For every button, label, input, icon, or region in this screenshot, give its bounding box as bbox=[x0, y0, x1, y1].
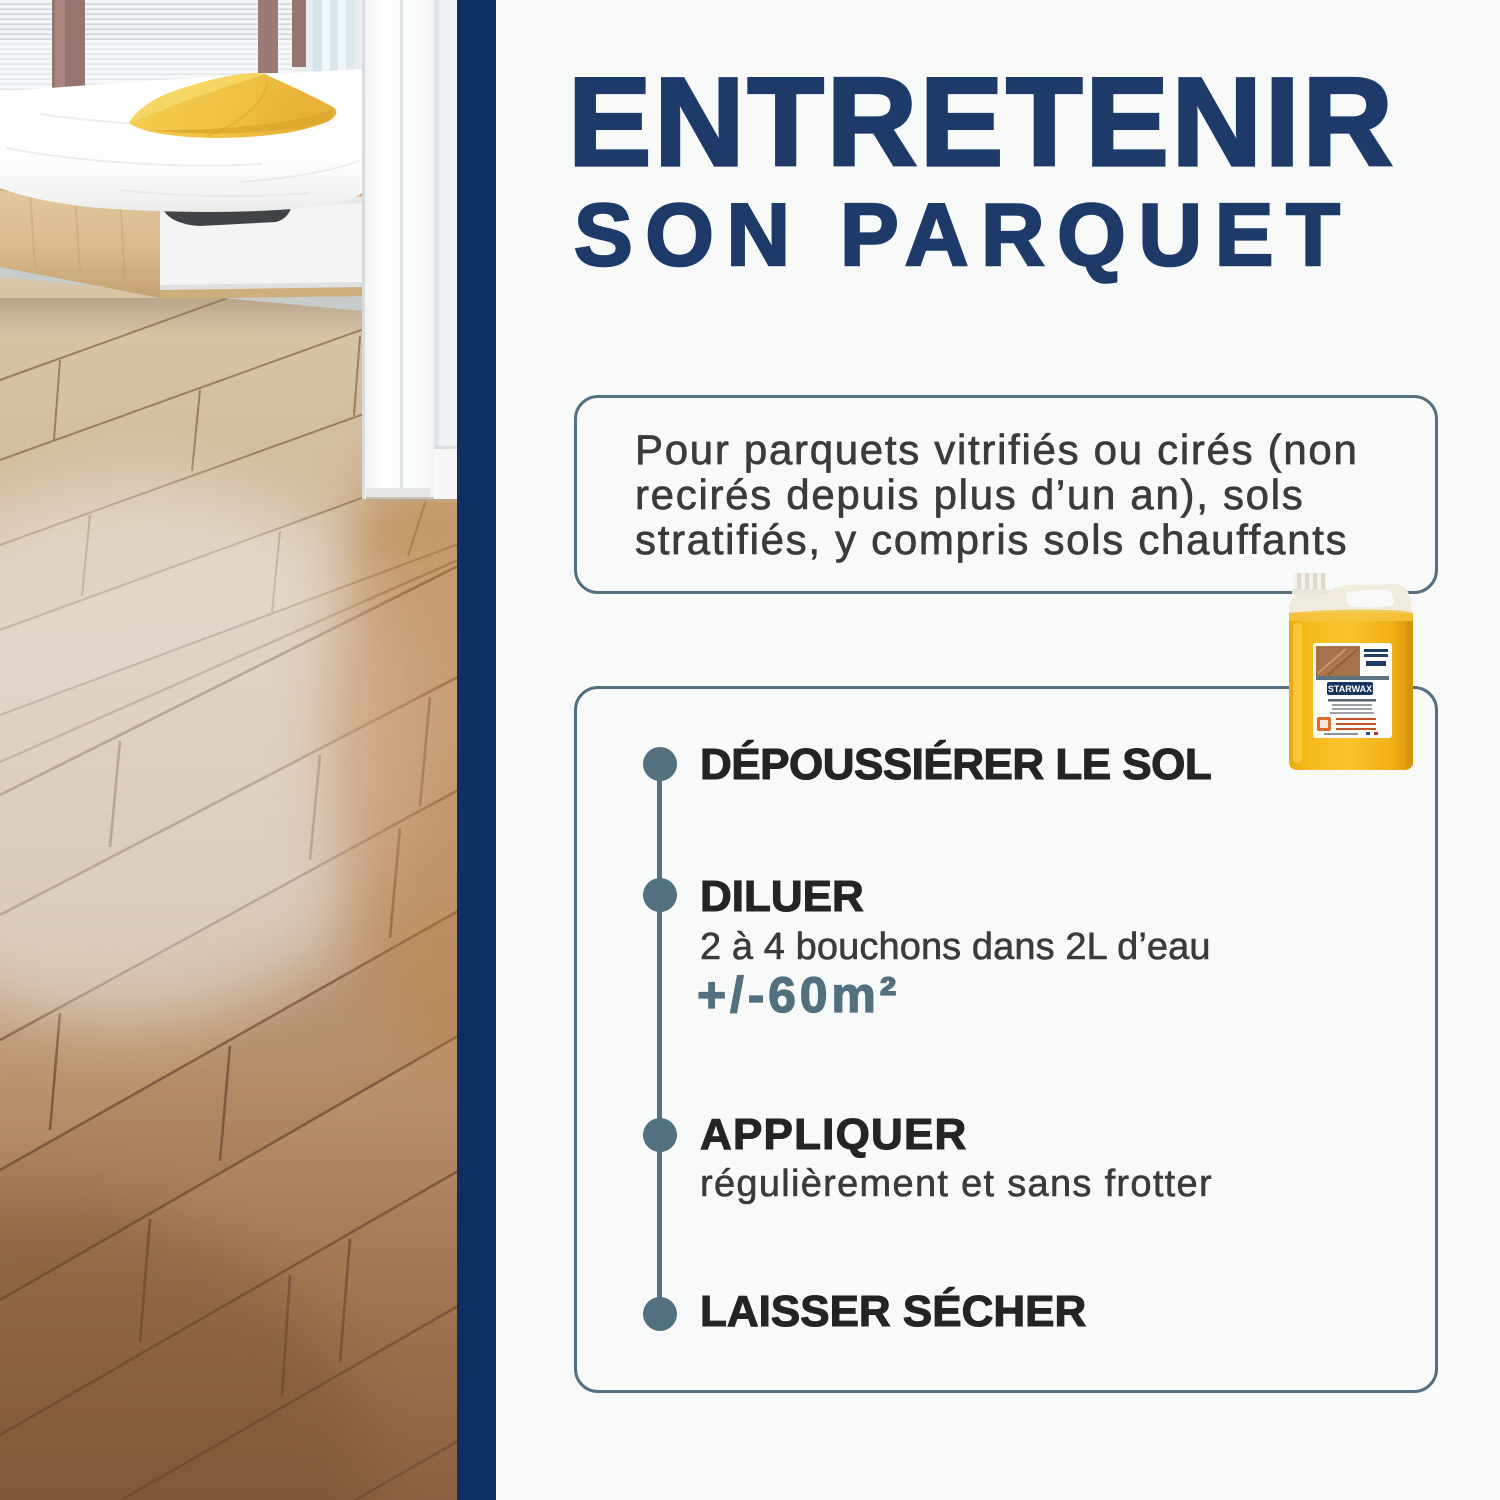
svg-text:STARWAX: STARWAX bbox=[1328, 684, 1372, 694]
